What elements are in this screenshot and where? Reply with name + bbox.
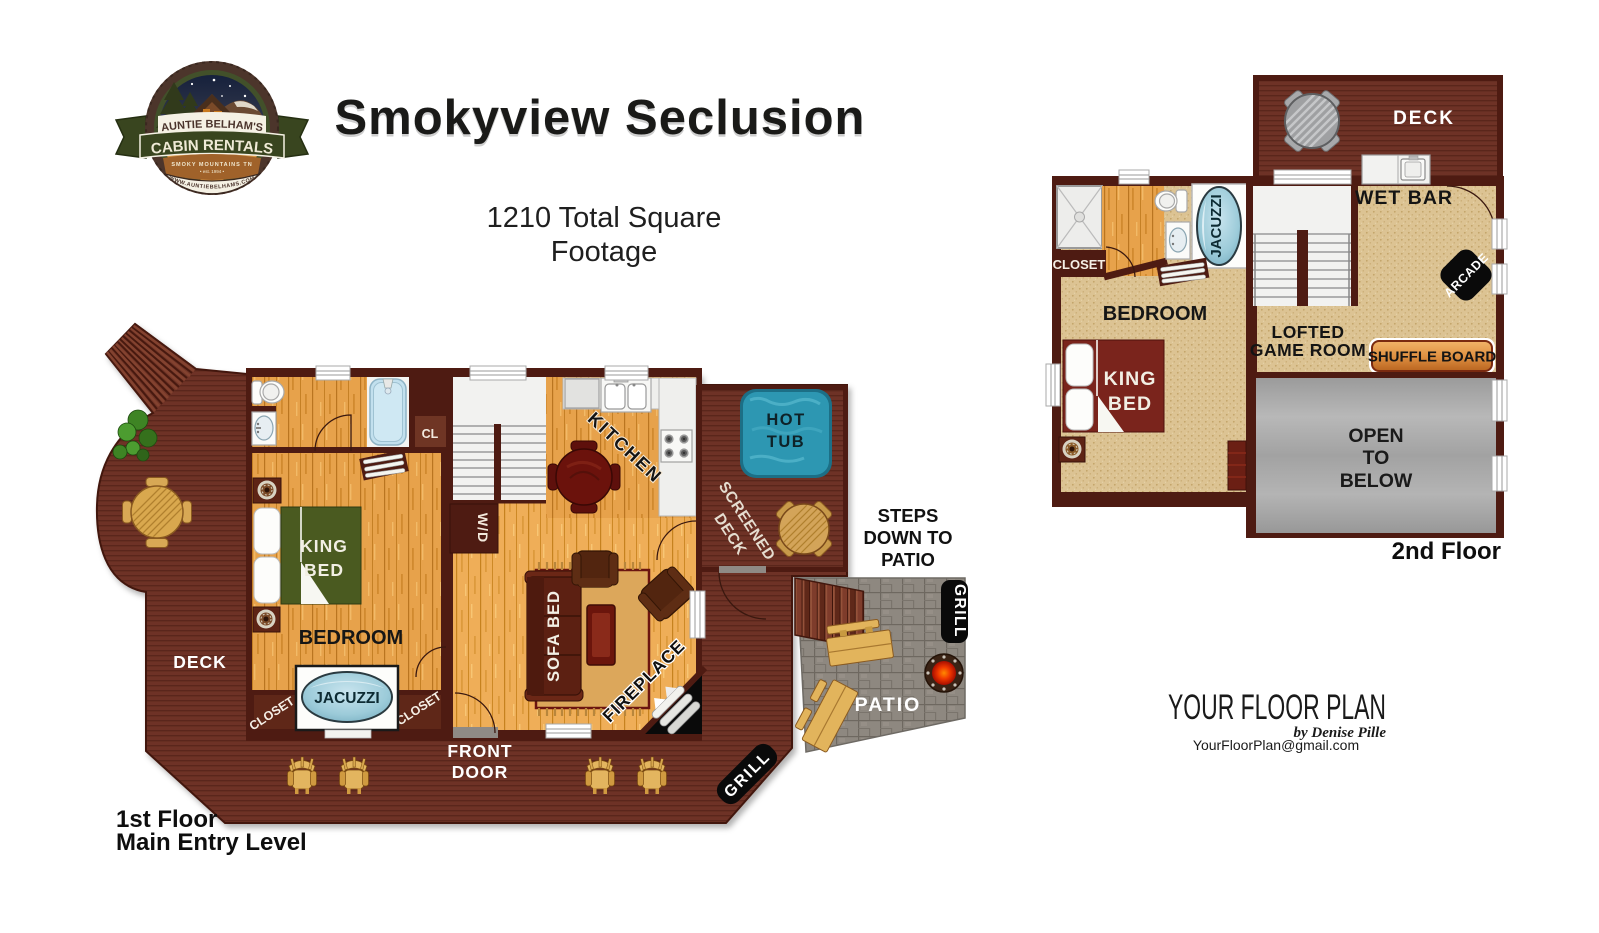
svg-text:TUB: TUB	[767, 433, 805, 451]
svg-text:FRONT: FRONT	[447, 741, 512, 761]
svg-text:YOUR FLOOR PLAN: YOUR FLOOR PLAN	[1168, 688, 1386, 727]
svg-text:KING: KING	[300, 536, 348, 556]
svg-text:DECK: DECK	[173, 652, 227, 672]
svg-text:PATIO: PATIO	[881, 549, 935, 570]
svg-text:SOFA BED: SOFA BED	[545, 590, 563, 682]
svg-text:BELOW: BELOW	[1340, 470, 1413, 492]
svg-text:JACUZZI: JACUZZI	[314, 690, 379, 707]
svg-text:BEDROOM: BEDROOM	[299, 627, 403, 649]
svg-text:LOFTED: LOFTED	[1272, 322, 1345, 342]
svg-text:STEPS: STEPS	[878, 505, 939, 526]
svg-text:Main Entry Level: Main Entry Level	[116, 829, 307, 856]
svg-text:DOWN TO: DOWN TO	[863, 527, 952, 548]
svg-text:BED: BED	[1108, 393, 1152, 415]
svg-text:OPEN: OPEN	[1348, 425, 1403, 447]
svg-text:GRILL: GRILL	[951, 584, 968, 638]
svg-text:BED: BED	[304, 560, 344, 580]
svg-text:TO: TO	[1363, 447, 1390, 469]
svg-text:BEDROOM: BEDROOM	[1103, 303, 1207, 325]
svg-text:SMOKY MOUNTAINS TN: SMOKY MOUNTAINS TN	[171, 162, 252, 168]
svg-text:HOT: HOT	[766, 411, 805, 429]
svg-text:KING: KING	[1104, 368, 1157, 390]
svg-text:DECK: DECK	[1393, 108, 1455, 129]
svg-text:CL: CL	[422, 427, 439, 441]
svg-text:DOOR: DOOR	[452, 762, 509, 782]
svg-text:W/D: W/D	[475, 513, 491, 543]
svg-text:• est. 1994 •: • est. 1994 •	[200, 169, 225, 174]
svg-text:SHUFFLE BOARD: SHUFFLE BOARD	[1368, 349, 1496, 366]
svg-text:JACUZZI: JACUZZI	[1208, 194, 1225, 257]
svg-text:YourFloorPlan@gmail.com: YourFloorPlan@gmail.com	[1193, 737, 1359, 753]
svg-text:PATIO: PATIO	[855, 694, 922, 716]
svg-text:2nd Floor: 2nd Floor	[1392, 538, 1501, 565]
svg-text:Footage: Footage	[551, 236, 657, 268]
svg-text:CLOSET: CLOSET	[1053, 257, 1106, 272]
svg-text:GAME ROOM: GAME ROOM	[1250, 340, 1366, 360]
svg-text:WET BAR: WET BAR	[1355, 187, 1453, 209]
svg-text:1210 Total Square: 1210 Total Square	[487, 202, 722, 234]
svg-text:Smokyview Seclusion: Smokyview Seclusion	[335, 91, 866, 145]
